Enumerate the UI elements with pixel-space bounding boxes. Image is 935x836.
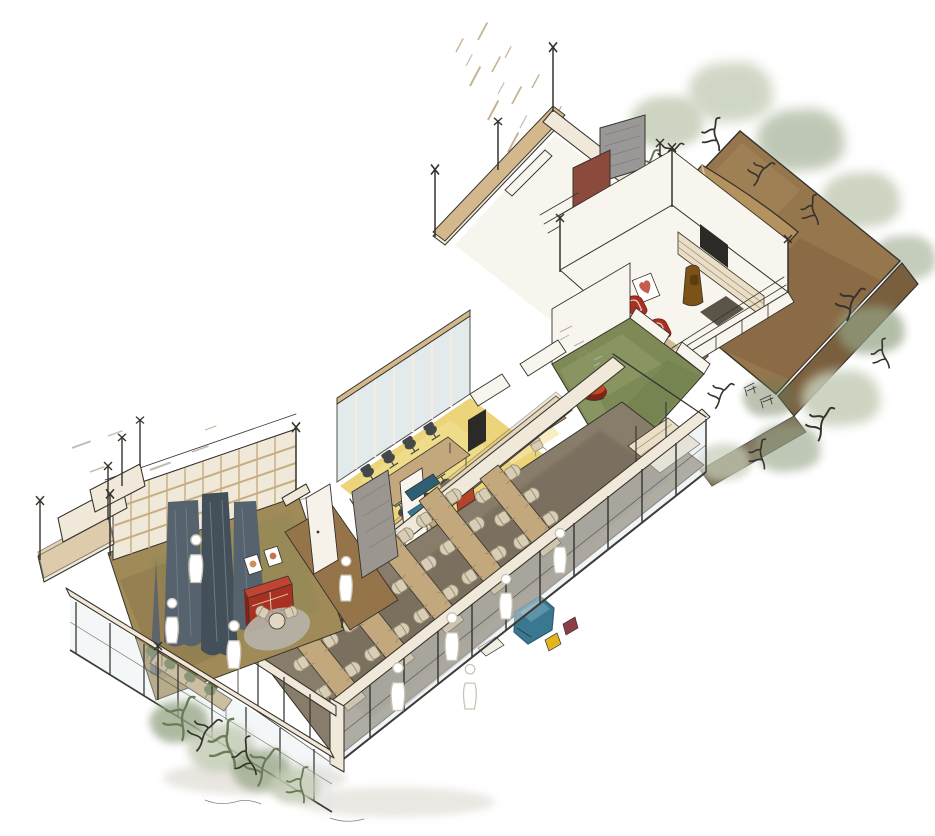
library-living-room bbox=[36, 414, 346, 812]
illustration-canvas bbox=[0, 0, 935, 836]
axonometric-sketch bbox=[0, 0, 935, 836]
small-round-table bbox=[269, 613, 285, 629]
wine-table bbox=[563, 617, 578, 635]
yellow-chair bbox=[545, 633, 561, 651]
